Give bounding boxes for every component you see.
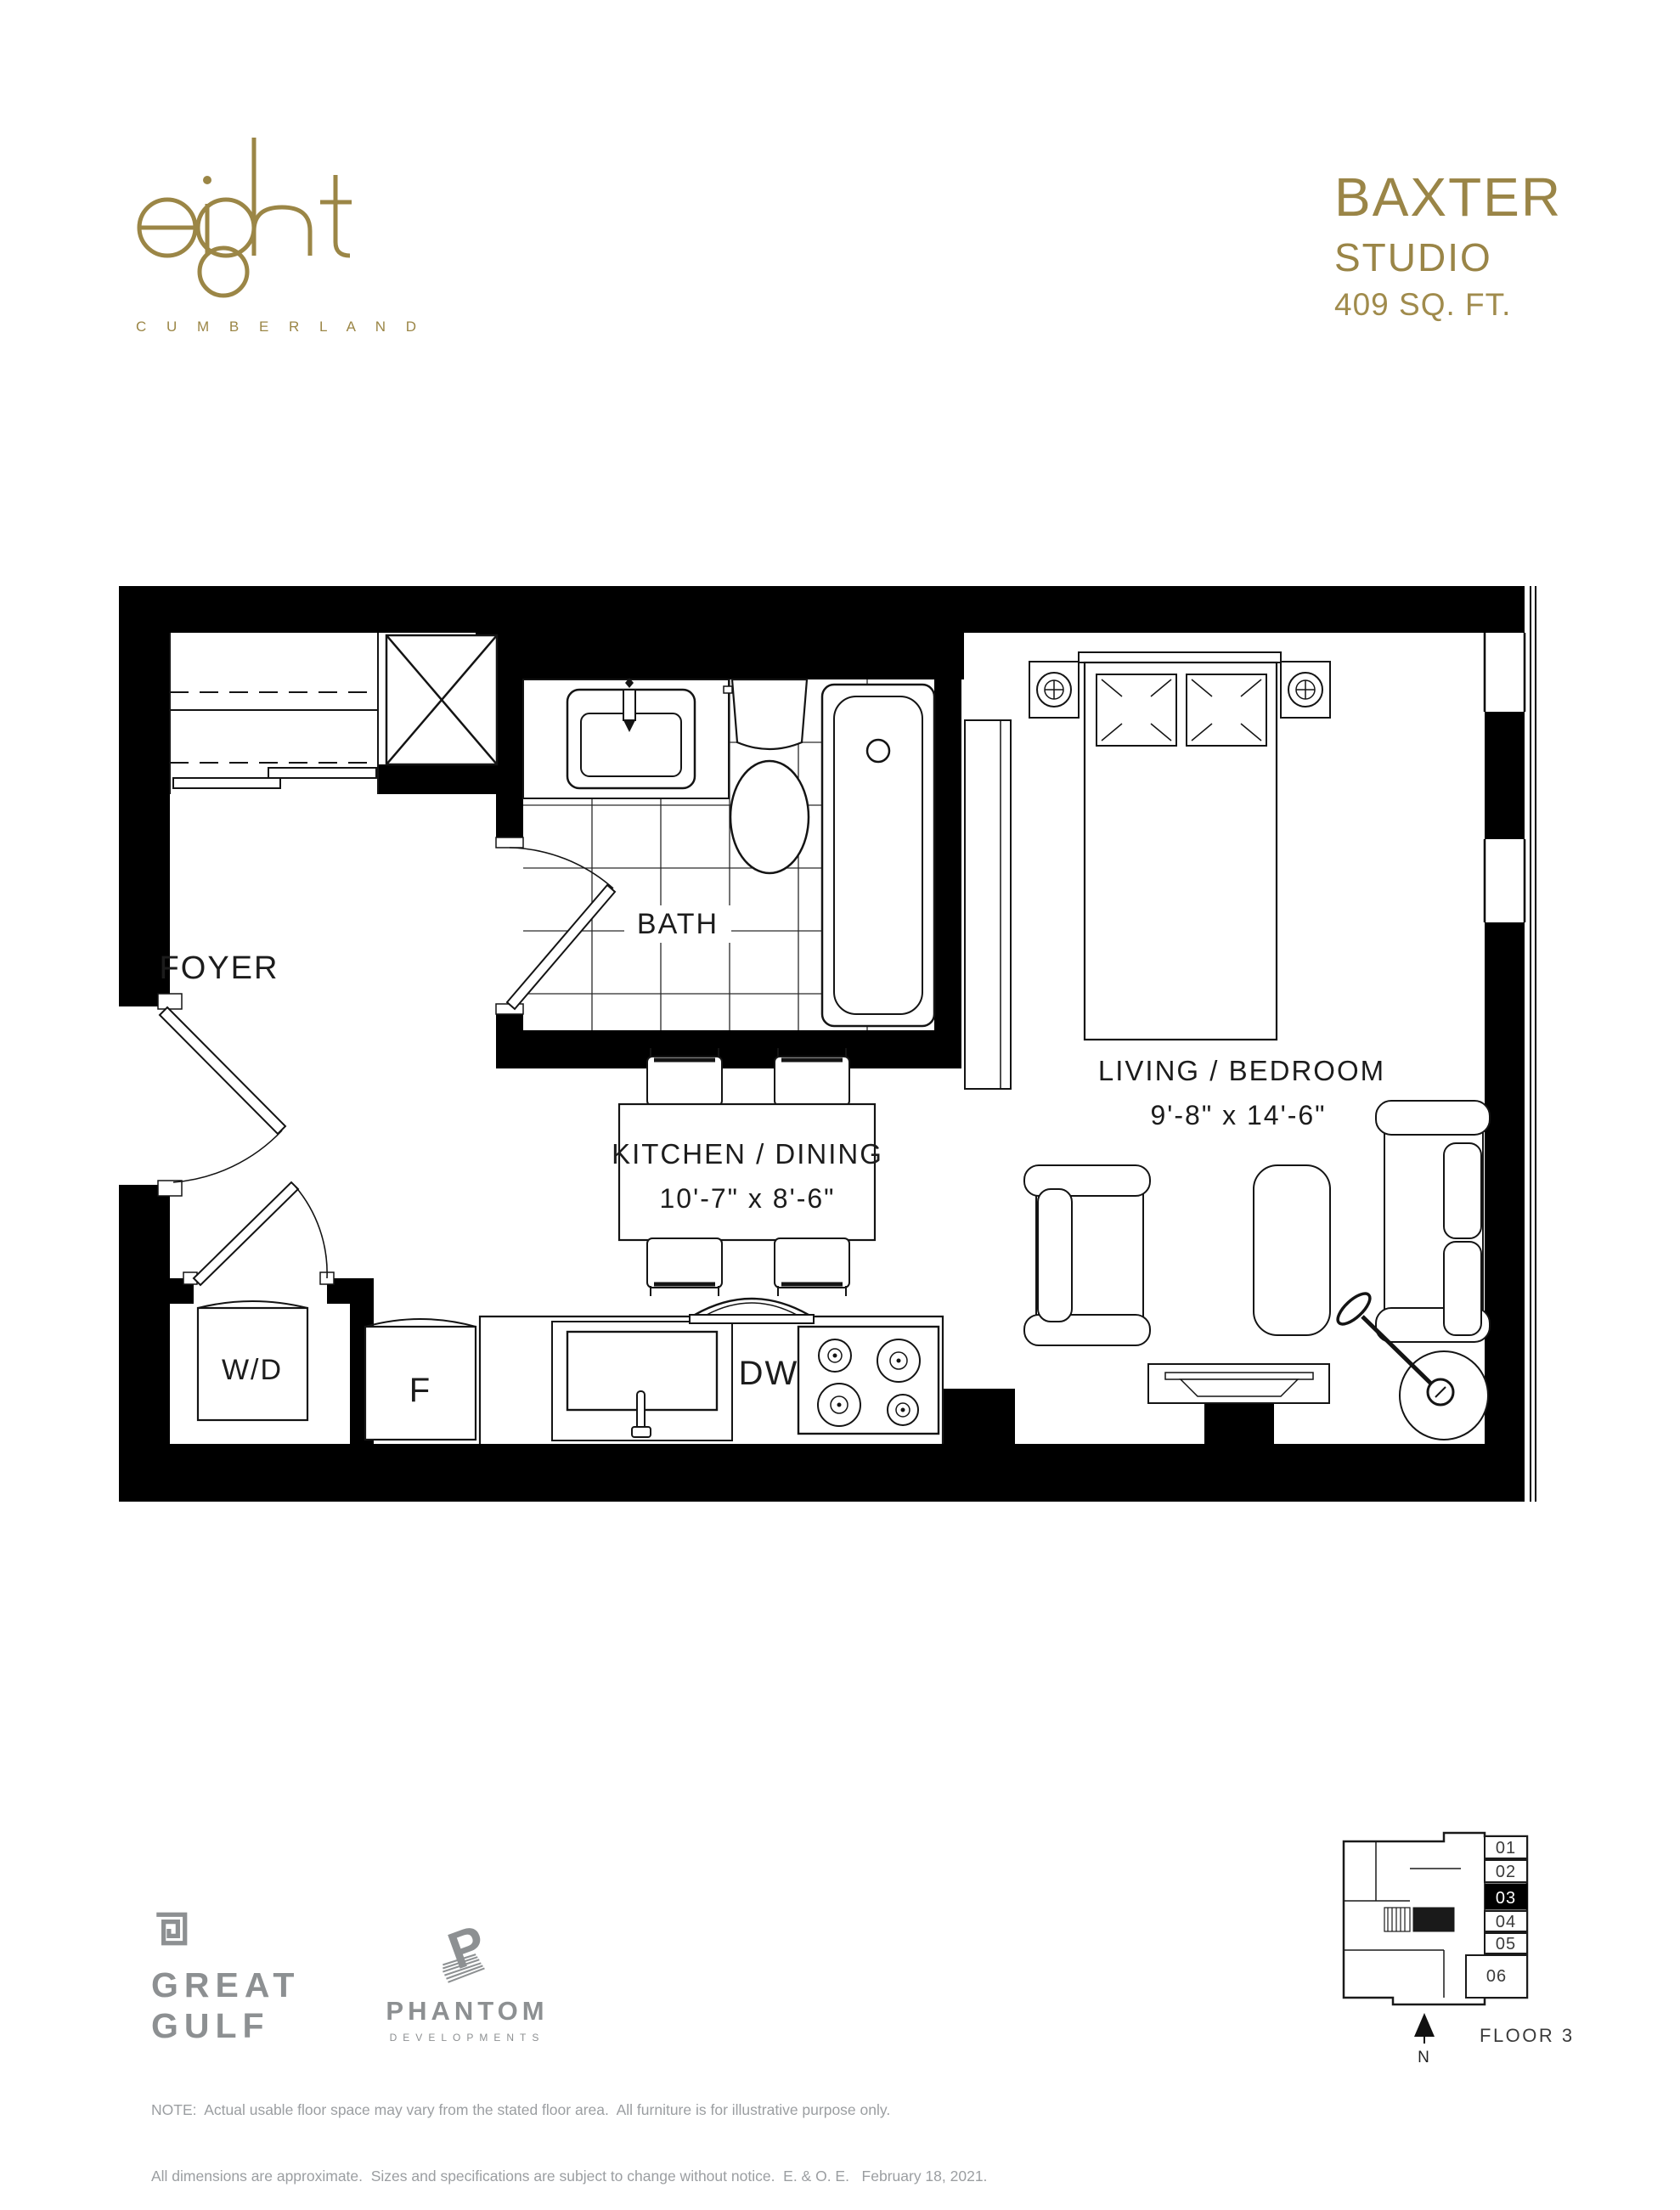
laundry-door <box>194 1182 298 1285</box>
headboard <box>1079 652 1281 662</box>
balcony-glazing-line <box>1531 586 1536 1502</box>
shaft-box <box>386 635 497 764</box>
keyplan: 01 02 03 04 05 06 N FLOOR 3 <box>1344 1833 1575 2066</box>
north-arrow-icon <box>1414 2013 1435 2044</box>
phantom-sub: DEVELOPMENTS <box>357 2032 578 2044</box>
phantom-name: PHANTOM <box>357 1996 578 2027</box>
dining-chair <box>647 1048 722 1106</box>
living-bedroom-dims: 9'-8" x 14'-6" <box>1150 1100 1326 1130</box>
living-room <box>1024 1101 1490 1440</box>
washer-dryer-label: W/D <box>222 1354 283 1386</box>
bathtub <box>822 685 934 1026</box>
wardrobe <box>965 720 1011 1089</box>
keyplan-unit-01-label: 01 <box>1496 1839 1516 1858</box>
disclaimer-note: NOTE: Actual usable floor space may vary… <box>151 2054 987 2210</box>
floor-plan: FOYER BATH KITCHEN / DINING 10'-7" x 8'-… <box>0 0 1680 2174</box>
bath-label: BATH <box>637 908 719 940</box>
fridge-label: F <box>409 1372 431 1409</box>
pillow <box>1097 674 1176 746</box>
entry-door <box>158 994 285 1196</box>
window-right-upper <box>1485 633 1525 712</box>
nightstand-lamp <box>1281 662 1330 718</box>
kitchen-sink <box>552 1322 732 1440</box>
foyer-label: FOYER <box>160 950 279 986</box>
keyplan-unit-02-label: 02 <box>1496 1863 1516 1881</box>
window-right-lower <box>1485 839 1525 922</box>
kitchen <box>365 1299 943 1444</box>
foyer-closet <box>170 633 378 794</box>
disclaimer-line2: All dimensions are approximate. Sizes an… <box>151 2165 987 2187</box>
kitchen-dining-label: KITCHEN / DINING <box>612 1138 883 1170</box>
north-label: N <box>1418 2049 1431 2066</box>
great-gulf-icon <box>151 1909 190 1948</box>
keyplan-unit-04-label: 04 <box>1496 1913 1516 1931</box>
pillow <box>1187 674 1266 746</box>
great-gulf-line2: GULF <box>151 2005 300 2046</box>
stair-hatch <box>1384 1908 1410 1931</box>
nightstand-lamp <box>1029 662 1079 718</box>
floor-label: FLOOR 3 <box>1480 2025 1575 2046</box>
keyplan-unit-06-label: 06 <box>1486 1967 1507 1986</box>
ottoman <box>1254 1165 1330 1335</box>
keyplan-unit-03-label: 03 <box>1496 1889 1516 1908</box>
dishwasher-label: DW <box>739 1355 799 1392</box>
dining-table <box>619 1104 875 1240</box>
keyplan-unit-05-label: 05 <box>1496 1935 1516 1953</box>
tv-console <box>1148 1364 1329 1403</box>
phantom-logo: P PHANTOM DEVELOPMENTS <box>357 1911 578 2044</box>
disclaimer-line1: NOTE: Actual usable floor space may vary… <box>151 2099 987 2121</box>
cooktop <box>798 1327 939 1434</box>
range-hood <box>690 1299 814 1323</box>
dining-chair <box>775 1238 849 1296</box>
dining-set <box>619 1048 875 1296</box>
bedroom <box>965 652 1330 1089</box>
great-gulf-logo: GREAT GULF <box>151 1909 300 2047</box>
kitchen-dining-dims: 10'-7" x 8'-6" <box>659 1183 835 1214</box>
sofa <box>1376 1101 1490 1342</box>
bath-sink <box>567 678 695 788</box>
dining-chair <box>775 1048 849 1106</box>
bathroom <box>496 678 934 1030</box>
living-bedroom-label: LIVING / BEDROOM <box>1098 1055 1385 1086</box>
phantom-icon: P <box>431 1911 503 1989</box>
great-gulf-line1: GREAT <box>151 1965 300 2005</box>
dining-chair <box>647 1238 722 1296</box>
armchair <box>1024 1165 1150 1345</box>
